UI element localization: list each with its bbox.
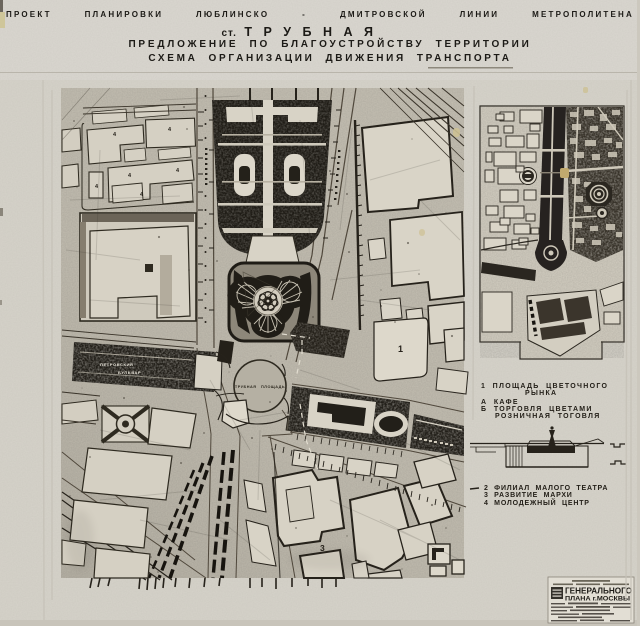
svg-text:ПЕТРОВСКИЙ: ПЕТРОВСКИЙ: [100, 362, 134, 367]
svg-text:БУЛЬВАР: БУЛЬВАР: [118, 370, 141, 375]
svg-text:ТРУБНАЯ ПЛОЩАДЬ: ТРУБНАЯ ПЛОЩАДЬ: [235, 385, 285, 389]
svg-text:ПЛАНА г.МОСКВЫ: ПЛАНА г.МОСКВЫ: [565, 596, 631, 603]
svg-text:1: 1: [398, 344, 403, 354]
svg-text:ГЕНЕРАЛЬНОГО: ГЕНЕРАЛЬНОГО: [565, 587, 632, 596]
